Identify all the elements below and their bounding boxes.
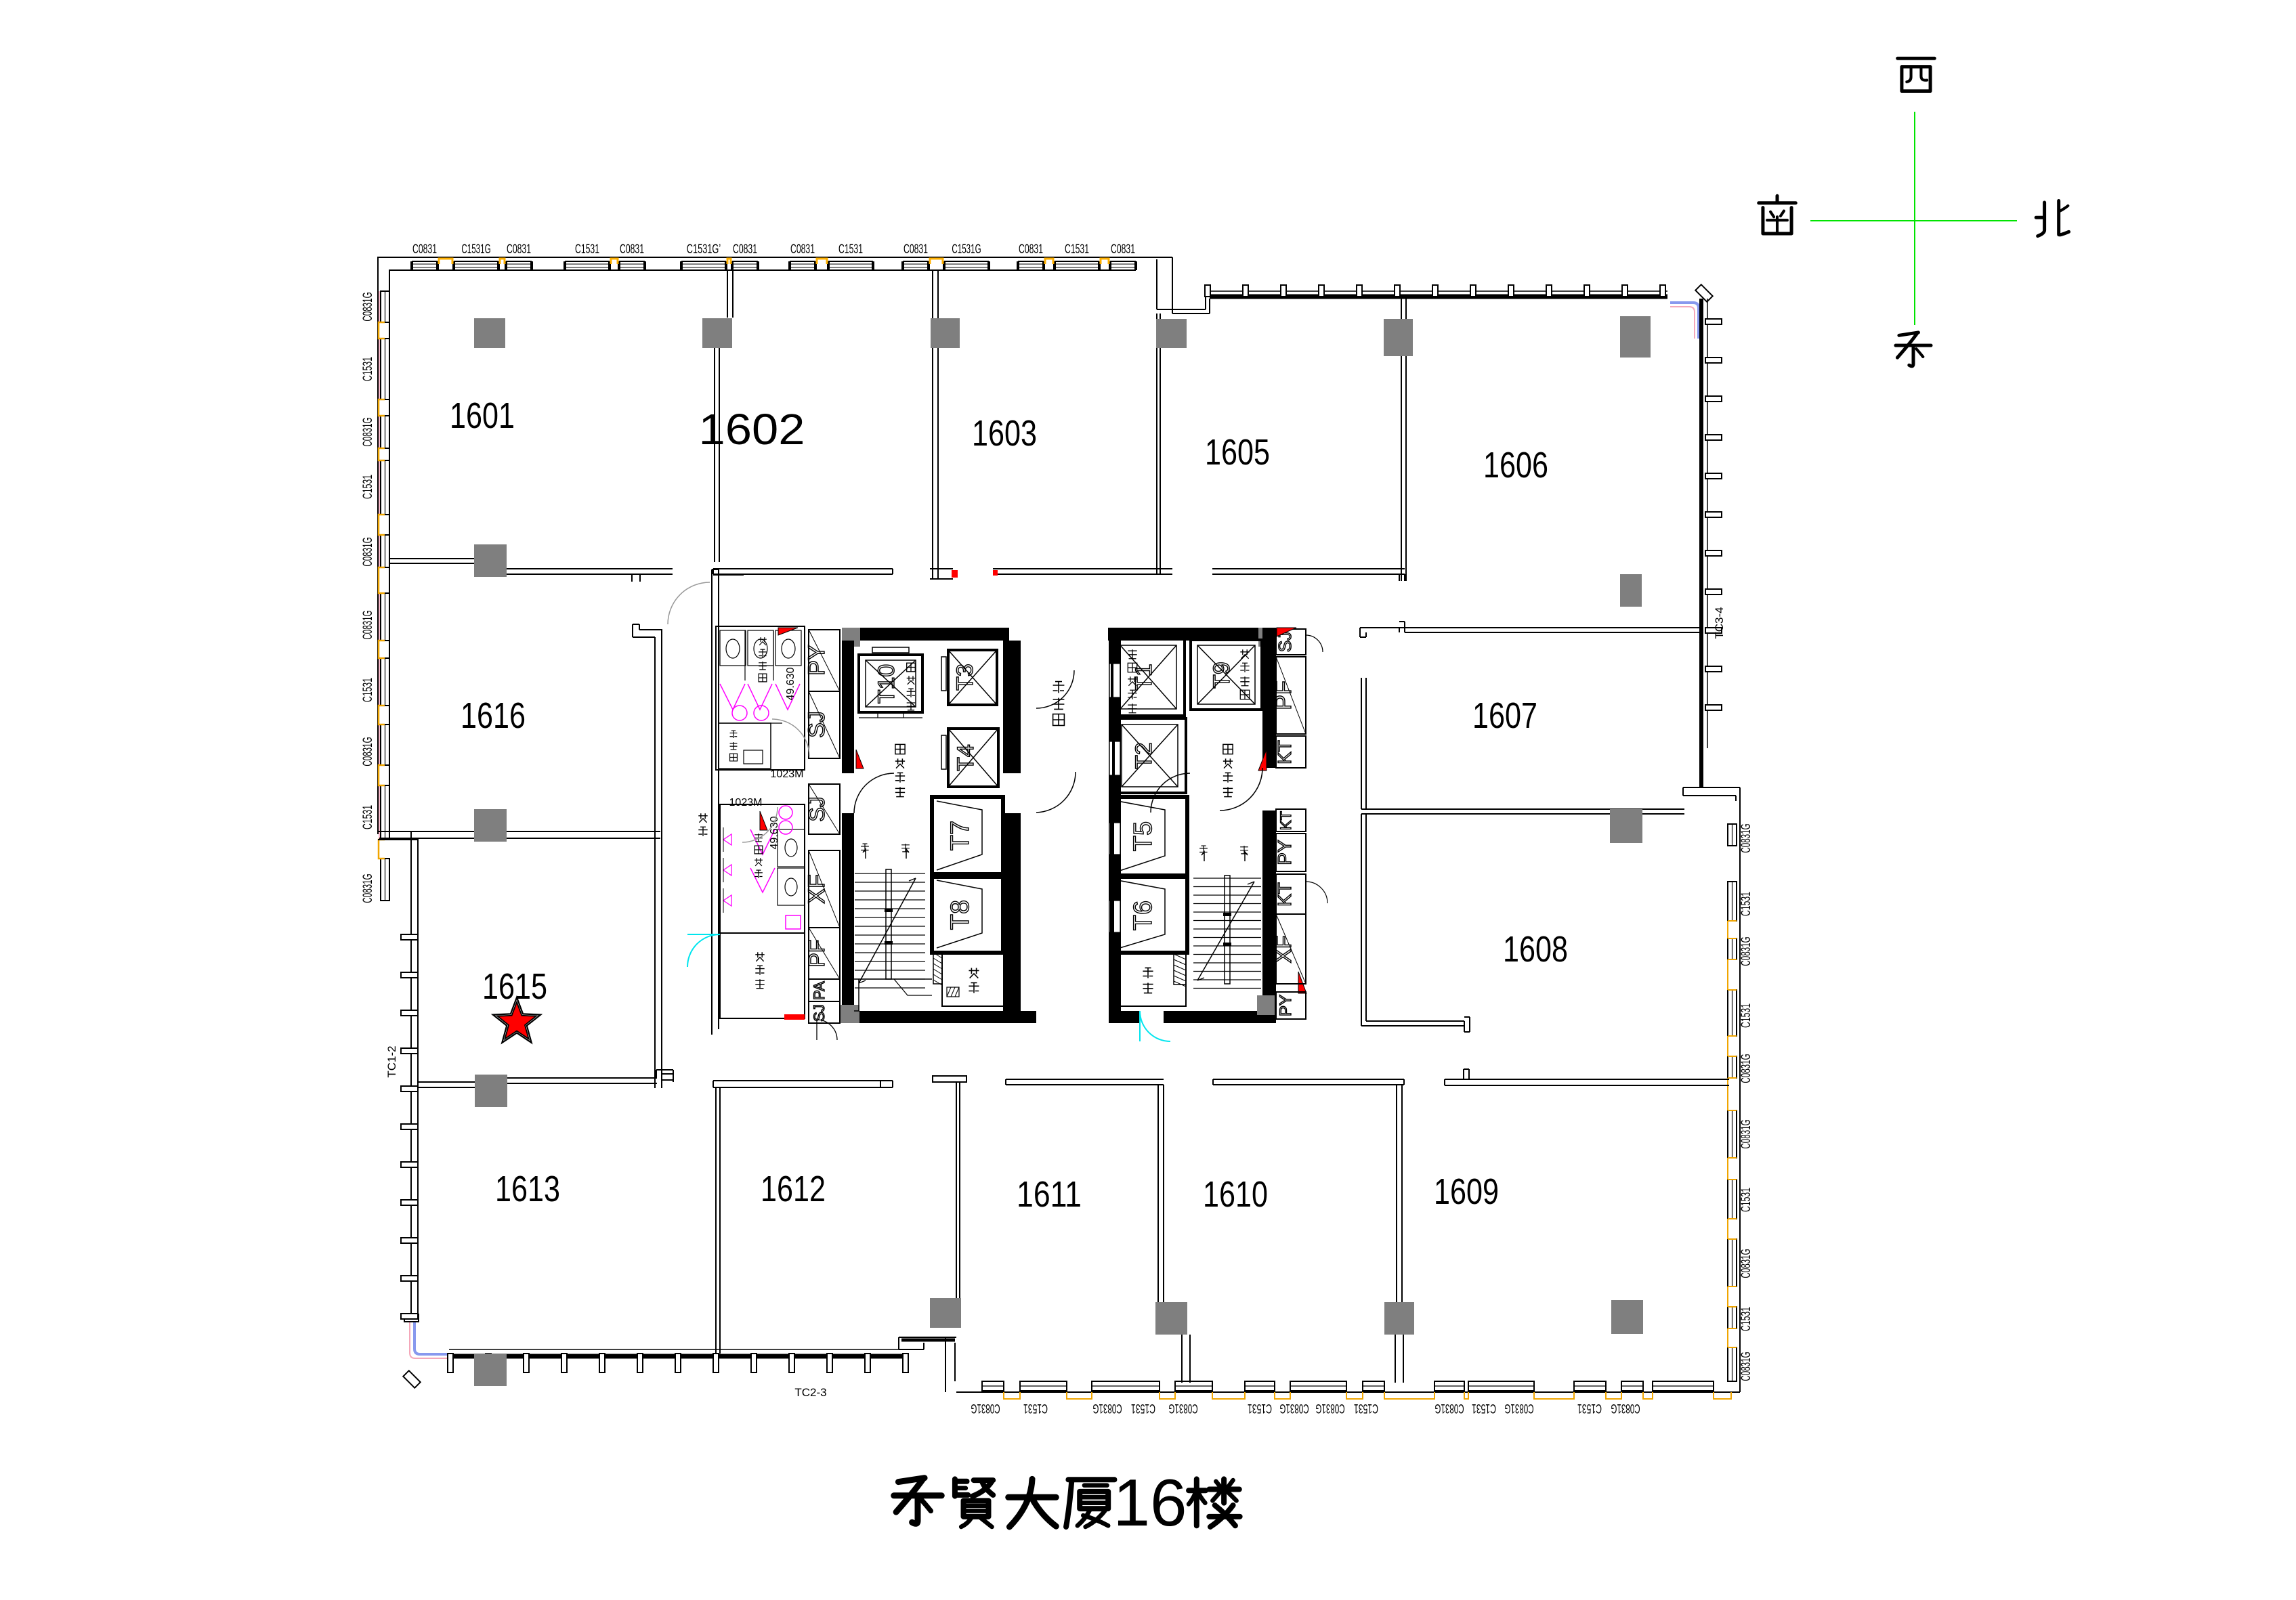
- svg-text:C1531: C1531: [361, 357, 375, 381]
- svg-text:TC3-4: TC3-4: [1713, 607, 1726, 639]
- svg-text:C1531: C1531: [361, 475, 375, 499]
- svg-text:49.630: 49.630: [785, 667, 796, 700]
- svg-text:16: 16: [1113, 1465, 1187, 1540]
- svg-text:SJ: SJ: [804, 711, 830, 738]
- svg-text:C0831G: C0831G: [1315, 1401, 1344, 1415]
- svg-text:C0831: C0831: [507, 242, 531, 257]
- svg-text:1602: 1602: [699, 405, 805, 454]
- svg-text:1609: 1609: [1434, 1171, 1499, 1212]
- svg-text:T5: T5: [1129, 821, 1157, 851]
- svg-text:C1531: C1531: [361, 678, 375, 702]
- svg-text:1613: 1613: [495, 1169, 560, 1209]
- svg-text:C0831G: C0831G: [361, 292, 375, 321]
- svg-text:C0831: C0831: [1019, 242, 1043, 257]
- svg-text:C0831G: C0831G: [1739, 936, 1753, 966]
- svg-text:C1531: C1531: [1354, 1401, 1378, 1415]
- svg-text:C1531: C1531: [575, 242, 599, 257]
- svg-text:TC1-2: TC1-2: [385, 1045, 398, 1077]
- svg-text:C1531: C1531: [1248, 1401, 1272, 1415]
- svg-text:T10: T10: [874, 664, 899, 704]
- svg-text:KT: KT: [1277, 811, 1294, 830]
- svg-text:1023M: 1023M: [729, 797, 763, 808]
- svg-text:XF: XF: [804, 874, 830, 903]
- svg-text:PA: PA: [811, 981, 828, 1000]
- svg-text:C0831G: C0831G: [1739, 1352, 1753, 1381]
- svg-text:PY: PY: [804, 645, 830, 675]
- svg-text:C1531: C1531: [838, 242, 863, 257]
- svg-text:C0831G: C0831G: [361, 610, 375, 639]
- svg-text:C0831G: C0831G: [971, 1401, 1000, 1415]
- svg-text:C0831G: C0831G: [1504, 1401, 1533, 1415]
- svg-text:T3: T3: [952, 664, 978, 691]
- svg-text:C0831G: C0831G: [1434, 1401, 1464, 1415]
- svg-text:T9: T9: [1209, 662, 1235, 689]
- svg-text:C0831G: C0831G: [361, 417, 375, 446]
- svg-text:C0831G: C0831G: [1739, 1249, 1753, 1278]
- svg-text:C0831G: C0831G: [1279, 1401, 1309, 1415]
- svg-text:C1531: C1531: [1739, 1003, 1753, 1028]
- svg-text:C0831: C0831: [412, 242, 437, 257]
- svg-text:C0831: C0831: [733, 242, 757, 257]
- svg-text:C1531G: C1531G: [461, 242, 490, 257]
- svg-text:1607: 1607: [1472, 695, 1537, 736]
- svg-text:C1531: C1531: [1577, 1401, 1602, 1415]
- svg-text:C0831: C0831: [903, 242, 928, 257]
- svg-text:1605: 1605: [1205, 432, 1270, 473]
- svg-text:SJ: SJ: [805, 796, 829, 821]
- svg-text:1601: 1601: [450, 395, 515, 436]
- svg-text:PF: PF: [805, 940, 829, 968]
- svg-text:C0831G: C0831G: [1168, 1401, 1197, 1415]
- svg-text:1608: 1608: [1503, 929, 1568, 970]
- svg-text:1606: 1606: [1483, 445, 1548, 485]
- svg-text:T2: T2: [1131, 742, 1157, 769]
- svg-text:C1531: C1531: [1065, 242, 1089, 257]
- svg-text:PY: PY: [1277, 995, 1295, 1016]
- svg-text:XF: XF: [1271, 936, 1296, 964]
- svg-text:C1531G’: C1531G’: [687, 242, 721, 257]
- svg-text:C0831: C0831: [620, 242, 644, 257]
- svg-text:C0831: C0831: [1111, 242, 1135, 257]
- svg-text:C0831G: C0831G: [1739, 823, 1753, 852]
- svg-text:C0831G: C0831G: [361, 873, 375, 903]
- svg-text:T4: T4: [953, 744, 979, 771]
- svg-text:C1531: C1531: [1131, 1401, 1155, 1415]
- svg-text:T7: T7: [946, 821, 975, 850]
- svg-text:PF: PF: [1271, 680, 1296, 710]
- svg-text:KT: KT: [1274, 882, 1295, 907]
- svg-text:SJ: SJ: [811, 1004, 828, 1022]
- svg-text:C0831G: C0831G: [1611, 1401, 1640, 1415]
- svg-text:C1531: C1531: [1739, 1188, 1753, 1212]
- svg-text:C1531: C1531: [361, 805, 375, 829]
- svg-text:C0831G: C0831G: [361, 737, 375, 766]
- svg-text:C0831: C0831: [790, 242, 815, 257]
- svg-text:KT: KT: [1274, 740, 1295, 764]
- svg-text:C0831G: C0831G: [1739, 1054, 1753, 1083]
- svg-text:C1531: C1531: [1023, 1401, 1048, 1415]
- svg-text:C1531G: C1531G: [952, 242, 981, 257]
- svg-text:1616: 1616: [461, 695, 526, 736]
- svg-text:1610: 1610: [1203, 1174, 1268, 1215]
- svg-text:C0831G: C0831G: [361, 537, 375, 566]
- svg-text:C1531: C1531: [1739, 892, 1753, 916]
- svg-text:C1531: C1531: [1739, 1307, 1753, 1331]
- svg-text:T8: T8: [946, 900, 975, 930]
- svg-text:1612: 1612: [761, 1169, 826, 1209]
- svg-text:C0831G: C0831G: [1092, 1401, 1122, 1415]
- svg-text:C1531: C1531: [1472, 1401, 1496, 1415]
- svg-text:C0831G: C0831G: [1739, 1119, 1753, 1148]
- svg-text:PY: PY: [1274, 840, 1295, 865]
- svg-text:T6: T6: [1129, 901, 1157, 930]
- svg-text:1603: 1603: [972, 413, 1037, 454]
- svg-text:TC2-3: TC2-3: [794, 1386, 826, 1399]
- svg-text:1611: 1611: [1017, 1174, 1082, 1215]
